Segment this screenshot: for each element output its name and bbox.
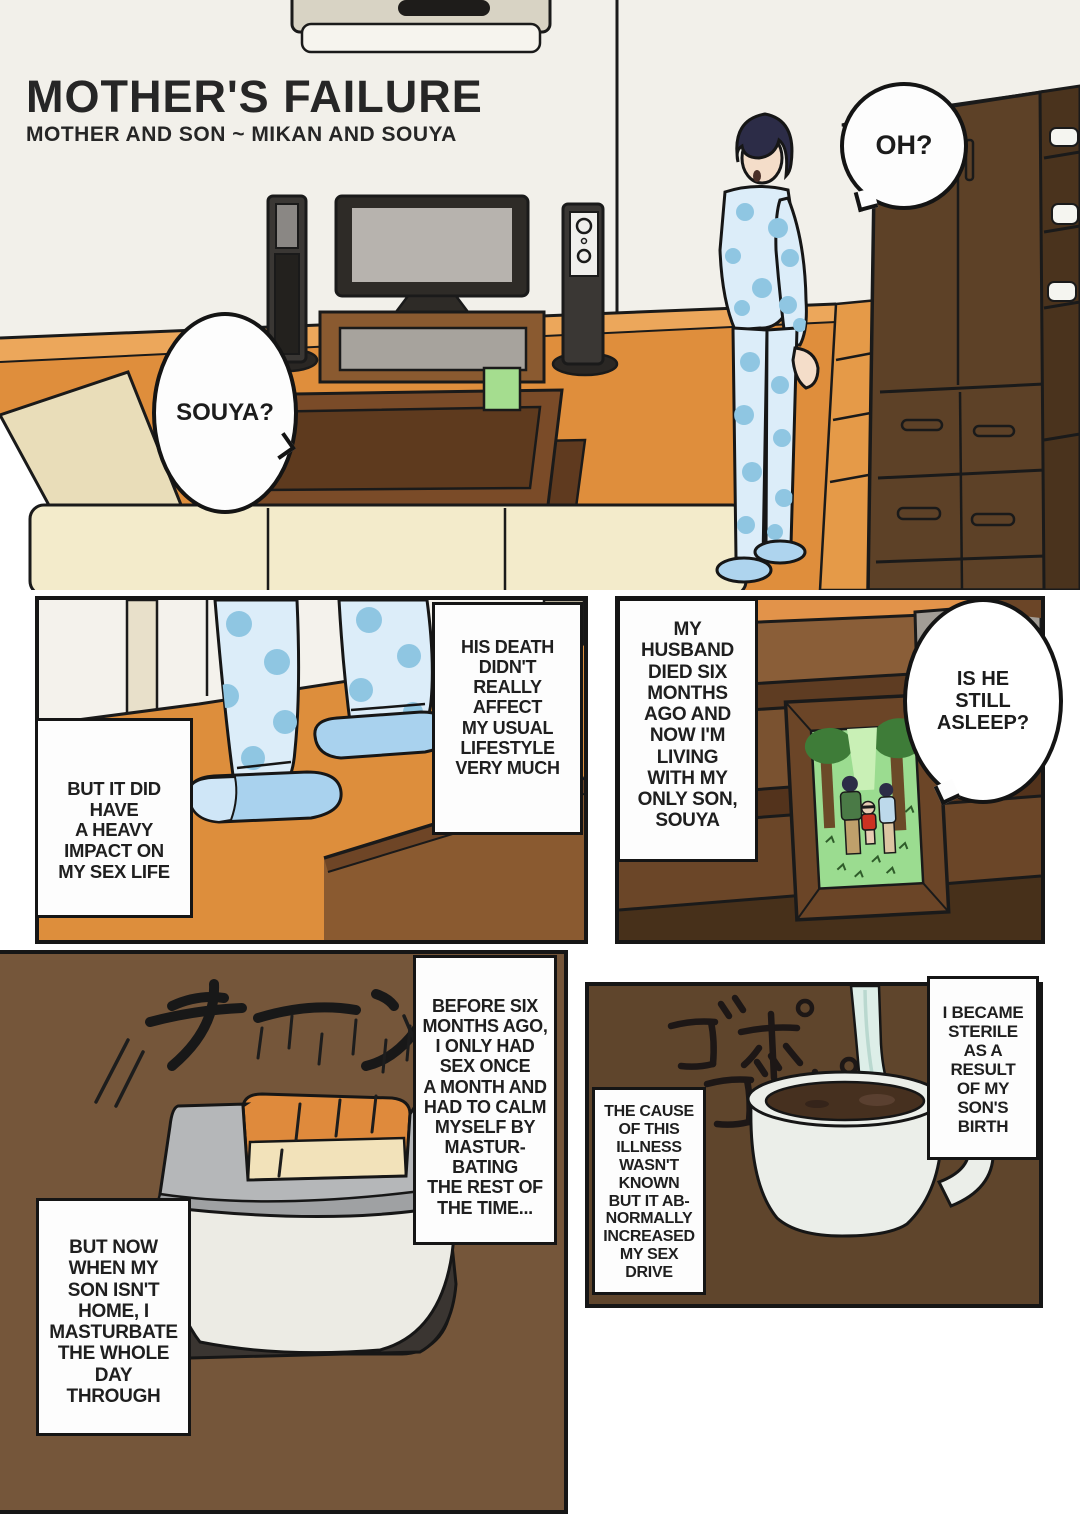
bubble-oh-text: OH? bbox=[876, 131, 933, 161]
bubble-asleep-text: IS HE STILL ASLEEP? bbox=[937, 668, 1029, 734]
slipper-front bbox=[717, 558, 771, 582]
caption-husband: MY HUSBAND DIED SIX MONTHS AGO AND NOW I… bbox=[617, 598, 758, 862]
speech-bubble-oh: OH? bbox=[840, 82, 968, 210]
slipper-back bbox=[315, 712, 451, 758]
couch bbox=[30, 505, 746, 590]
plate-shelf bbox=[1040, 86, 1080, 590]
title-block: MOTHER'S FAILURE MOTHER AND SON ~ MIKAN … bbox=[26, 74, 483, 147]
caption-impact: BUT IT DID HAVE A HEAVY IMPACT ON MY SEX… bbox=[35, 718, 193, 918]
comic-page: MOTHER'S FAILURE MOTHER AND SON ~ MIKAN … bbox=[0, 0, 1080, 1525]
air-conditioner bbox=[292, 0, 550, 52]
page-title: MOTHER'S FAILURE bbox=[26, 74, 483, 119]
caption-his-death: HIS DEATH DIDN'T REALLY AFFECT MY USUAL … bbox=[432, 602, 583, 835]
bubble-souya-text: SOUYA? bbox=[176, 400, 274, 426]
caption-sterile: I BECAME STERILE AS A RESULT OF MY SON'S… bbox=[927, 976, 1039, 1160]
door-frame bbox=[127, 600, 157, 716]
coffee-surface bbox=[766, 1082, 924, 1120]
speech-bubble-souya: SOUYA? bbox=[152, 312, 298, 514]
caption-before: BEFORE SIX MONTHS AGO, I ONLY HAD SEX ON… bbox=[413, 955, 557, 1245]
speech-bubble-asleep: IS HE STILL ASLEEP? bbox=[903, 598, 1063, 804]
page-subtitle: MOTHER AND SON ~ MIKAN AND SOUYA bbox=[26, 123, 483, 147]
caption-cause: THE CAUSE OF THIS ILLNESS WASN'T KNOWN B… bbox=[592, 1087, 706, 1295]
tv bbox=[336, 196, 528, 312]
toast bbox=[243, 1094, 410, 1180]
caption-but-now: BUT NOW WHEN MY SON ISN'T HOME, I MASTUR… bbox=[36, 1198, 191, 1436]
green-remote bbox=[484, 368, 520, 410]
